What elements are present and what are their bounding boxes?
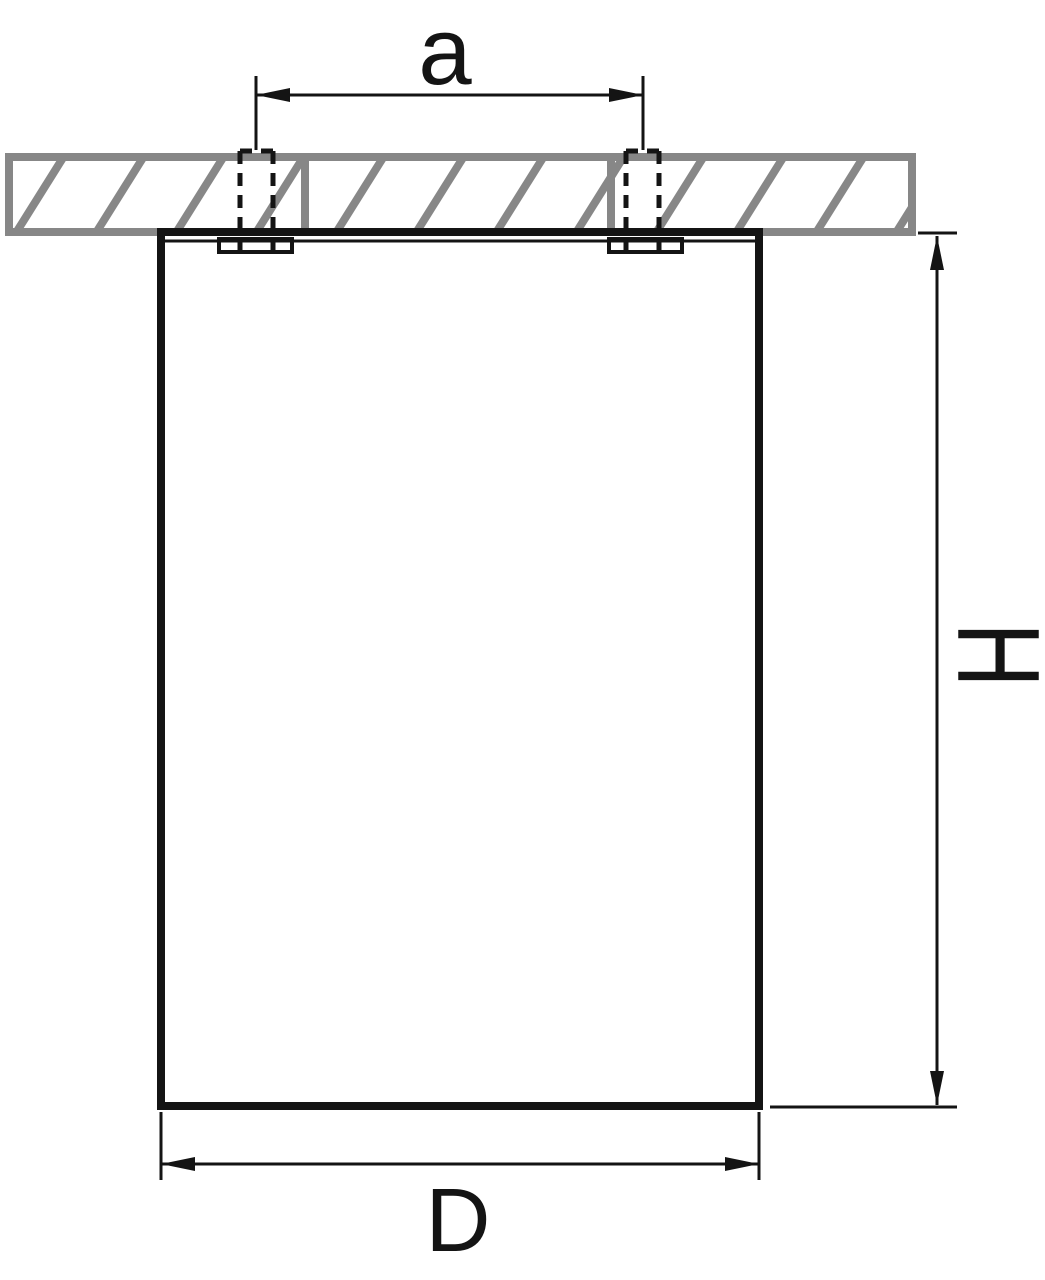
ceiling-slab	[9, 157, 912, 232]
arrowhead-left	[161, 1157, 195, 1171]
arrowhead-left	[256, 88, 290, 102]
arrowhead-up	[930, 236, 944, 270]
technical-drawing: a H D	[0, 0, 1045, 1280]
dimension-a-label: a	[418, 0, 472, 105]
arrowhead-right	[725, 1157, 759, 1171]
dimension-d-label: D	[426, 1171, 491, 1271]
dimension-h-label: H	[932, 623, 1045, 688]
ceiling-section	[9, 153, 912, 236]
arrowhead-right	[609, 88, 643, 102]
technical-drawing-canvas: a H D	[0, 0, 1045, 1280]
arrowhead-down	[930, 1071, 944, 1105]
fixture-body	[161, 232, 759, 1106]
dimension-d: D	[161, 1112, 759, 1271]
dimension-h: H	[770, 233, 1045, 1107]
fixture-outline	[161, 232, 759, 1106]
dimension-a: a	[256, 0, 643, 150]
